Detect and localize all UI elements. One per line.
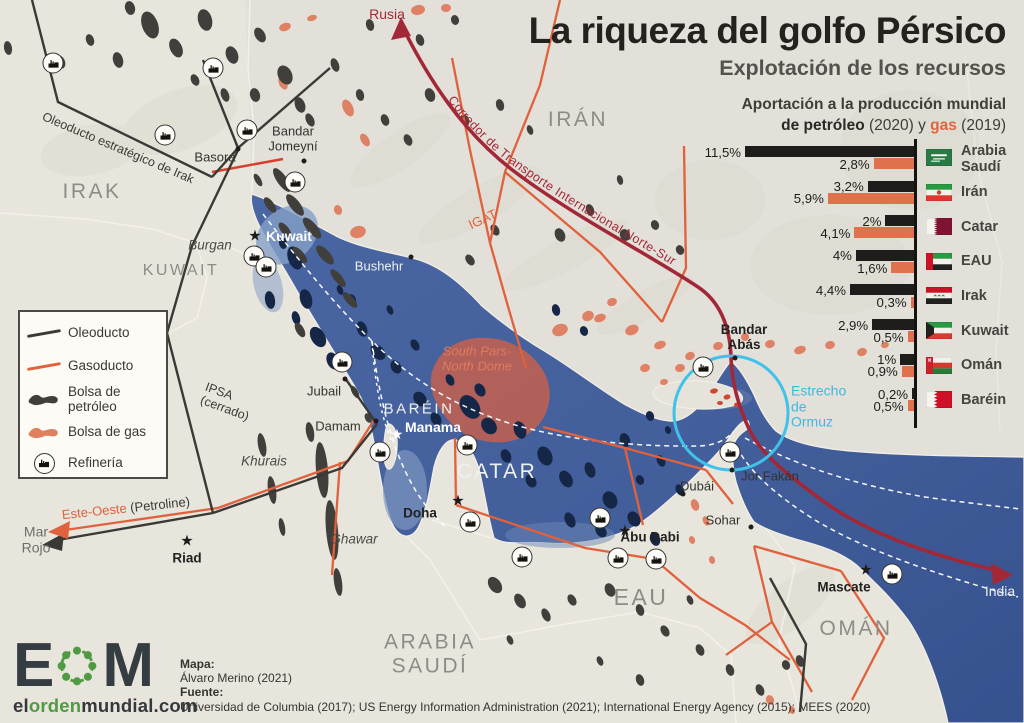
credits-map-label: Mapa: — [180, 657, 940, 671]
refinery-icon — [512, 547, 533, 568]
credits: Mapa: Álvaro Merino (2021) Fuente: Unive… — [180, 657, 940, 714]
city-dot — [374, 419, 379, 424]
country-name-arabia-saud: Arabia Saudí — [961, 143, 1006, 175]
logo-letter-e: E — [13, 639, 52, 693]
legend-item-oil-blob: Bolsa de petróleo — [20, 382, 170, 416]
country-name-catar: Catar — [961, 219, 998, 235]
credits-map-author: Álvaro Merino (2021) — [180, 671, 940, 685]
legend-oil-blob-icon — [20, 390, 68, 408]
chart-axis — [914, 139, 917, 428]
infographic-canvas: Corredor de Transporte Internacional Nor… — [0, 0, 1024, 723]
refinery-icon — [285, 172, 306, 193]
refinery-icon — [882, 564, 903, 585]
gas-value-arabia-saud: 2,8% — [800, 157, 870, 172]
oil-bar-om-n — [900, 354, 915, 365]
legend-label-refiner-a: Refinería — [68, 455, 123, 471]
gas-value-om-n: 0,9% — [828, 364, 898, 379]
legend-item-gas-line: Gasoducto — [20, 349, 170, 383]
gas-line-swatch — [27, 362, 61, 371]
flag-icon-kuwait — [926, 322, 952, 339]
gas-bar-catar — [854, 227, 915, 238]
country-name-kuwait: Kuwait — [961, 323, 1009, 339]
refinery-icon — [203, 58, 224, 79]
flag-icon-bar-in — [926, 391, 952, 408]
refinery-icon — [460, 512, 481, 533]
flag-icon-catar — [926, 218, 952, 235]
refinery-icon — [155, 125, 176, 146]
oil-bar-irak — [850, 284, 915, 295]
refinery-icon — [457, 435, 478, 456]
refinery-icon — [590, 508, 611, 529]
legend-item-gas-blob: Bolsa de gas — [20, 415, 170, 449]
city-dot — [302, 159, 307, 164]
chart-title-line2: de petróleo (2020) y gas (2019) — [742, 115, 1006, 136]
refinery-icon — [720, 442, 741, 463]
country-name-eau: EAU — [961, 253, 992, 269]
logo-o-dots-icon — [53, 640, 101, 695]
flag-icon-irak — [926, 287, 952, 304]
legend-item-oil-line: Oleoducto — [20, 316, 170, 350]
gas-bar-ir-n — [828, 193, 915, 204]
gas-bar-arabia-saud — [874, 158, 915, 169]
credits-source-label: Fuente: — [180, 685, 940, 699]
oil-bar-arabia-saud — [745, 146, 915, 157]
gas-bar-eau — [891, 262, 915, 273]
city-dot — [409, 255, 414, 260]
city-dot — [730, 468, 735, 473]
city-dot — [749, 525, 754, 530]
gas-value-bar-in: 0,5% — [834, 399, 904, 414]
refinery-icon — [370, 442, 391, 463]
oil-value-irak: 4,4% — [776, 283, 846, 298]
refinery-icon — [332, 352, 353, 373]
refinery-icon — [237, 120, 258, 141]
country-name-om-n: Omán — [961, 357, 1002, 373]
gas-value-catar: 4,1% — [780, 226, 850, 241]
country-name-ir-n: Irán — [961, 184, 988, 200]
chart-title-line1: Aportación a la producción mundial — [742, 94, 1006, 115]
country-name-irak: Irak — [961, 288, 987, 304]
eom-logo-letters: E M — [13, 636, 198, 695]
flag-icon-eau — [926, 253, 952, 270]
flag-icon-om-n — [926, 357, 952, 374]
legend-refinery-icon — [34, 453, 55, 474]
page-title: La riqueza del golfo Pérsico — [529, 10, 1006, 52]
refinery-icon — [693, 357, 714, 378]
gas-value-eau: 1,6% — [817, 261, 887, 276]
map-legend: OleoductoGasoductoBolsa de petróleoBolsa… — [18, 310, 168, 479]
legend-label-bolsa-de: Bolsa de petróleo — [68, 384, 121, 415]
eom-logo: E M elordenmundial.com — [13, 636, 198, 717]
oil-value-arabia-saud: 11,5% — [671, 145, 741, 160]
city-dot — [343, 377, 348, 382]
credits-source-text: Universidad de Columbia (2017); US Energ… — [180, 700, 940, 714]
oil-bar-ir-n — [868, 181, 915, 192]
refinery-icon — [43, 53, 64, 74]
oil-bar-eau — [856, 250, 915, 261]
oil-bar-catar — [885, 215, 915, 226]
legend-gas-blob-icon — [20, 423, 68, 441]
logo-letter-m: M — [102, 639, 152, 693]
city-dot — [733, 356, 738, 361]
oil-bar-kuwait — [872, 319, 915, 330]
flag-icon-arabia-saud — [926, 149, 952, 166]
gas-value-kuwait: 0,5% — [834, 330, 904, 345]
legend-gas-line-icon — [20, 365, 68, 368]
city-dot — [681, 492, 686, 497]
refinery-icon — [608, 548, 629, 569]
gas-bar-om-n — [902, 366, 915, 377]
legend-refinery-icon — [20, 453, 68, 474]
gas-value-irak: 0,3% — [837, 295, 907, 310]
legend-item-refinery: Refinería — [20, 446, 170, 480]
refinery-icon — [256, 257, 277, 278]
gas-value-ir-n: 5,9% — [754, 191, 824, 206]
oil-line-swatch — [27, 329, 61, 338]
chart-title: Aportación a la producción mundial de pe… — [742, 94, 1006, 136]
city-dot — [236, 147, 241, 152]
refinery-icon — [646, 549, 667, 570]
legend-label-bolsa-de-gas: Bolsa de gas — [68, 424, 146, 440]
legend-oil-line-icon — [20, 332, 68, 335]
legend-label-oleoducto: Oleoducto — [68, 325, 130, 341]
page-subtitle: Explotación de los recursos — [719, 56, 1006, 81]
legend-label-gasoducto: Gasoducto — [68, 358, 133, 374]
country-name-bar-in: Baréin — [961, 392, 1006, 408]
flag-icon-ir-n — [926, 184, 952, 201]
logo-domain: elordenmundial.com — [13, 695, 198, 717]
